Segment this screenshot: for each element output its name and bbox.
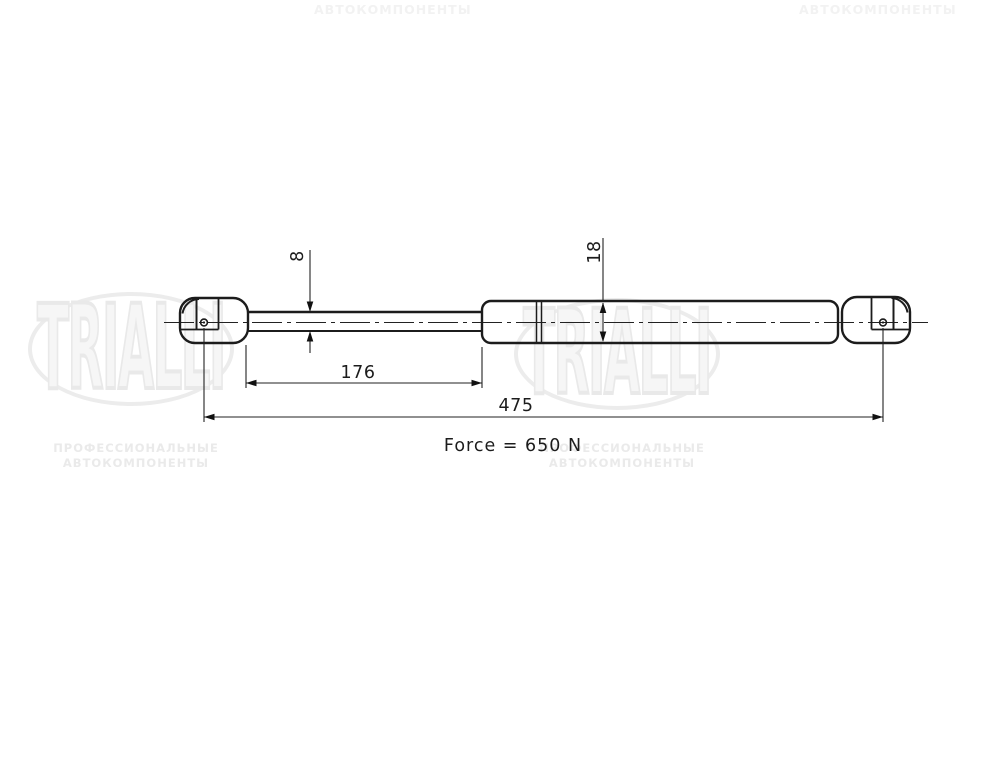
rod-diameter-value: 8 <box>288 250 308 262</box>
dim-rod-length: 176 <box>246 345 482 388</box>
product-drawing-canvas: АВТОКОМПОНЕНТЫ АВТОКОМПОНЕНТЫ TRIALLI ПР… <box>0 0 1000 773</box>
dim-body-diameter: 18 <box>585 238 606 342</box>
right-eyelet-fitting <box>842 297 910 343</box>
dim-rod-diameter: 8 <box>288 250 313 353</box>
left-eyelet-fitting <box>180 298 248 343</box>
gas-spring-diagram: 8 18 176 475 Force = <box>0 0 1000 773</box>
force-label: Force = 650 N <box>444 436 582 456</box>
rod-length-value: 176 <box>341 363 376 383</box>
total-length-value: 475 <box>499 396 534 416</box>
body-diameter-value: 18 <box>585 240 605 263</box>
piston-rod <box>248 312 483 331</box>
